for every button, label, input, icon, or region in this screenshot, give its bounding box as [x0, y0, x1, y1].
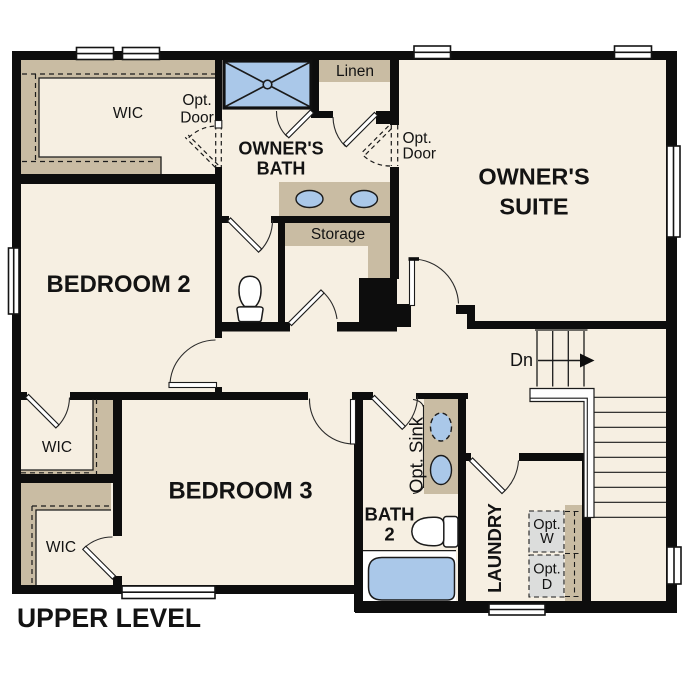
svg-text:Door: Door	[403, 145, 437, 162]
svg-text:Door: Door	[180, 109, 214, 126]
svg-text:OWNER'S: OWNER'S	[238, 138, 323, 158]
svg-text:Dn: Dn	[510, 350, 533, 370]
svg-text:W: W	[540, 531, 554, 547]
svg-text:WIC: WIC	[42, 439, 72, 456]
svg-text:SUITE: SUITE	[499, 194, 568, 220]
svg-text:LAUNDRY: LAUNDRY	[484, 502, 505, 592]
svg-text:OWNER'S: OWNER'S	[478, 164, 589, 190]
svg-text:Storage: Storage	[311, 226, 365, 243]
svg-text:D: D	[542, 577, 552, 593]
svg-text:2: 2	[384, 524, 394, 545]
svg-text:Linen: Linen	[336, 63, 374, 80]
svg-text:BEDROOM 2: BEDROOM 2	[47, 271, 191, 298]
svg-text:UPPER LEVEL: UPPER LEVEL	[17, 603, 201, 633]
svg-text:BATH: BATH	[257, 158, 306, 178]
svg-text:BEDROOM 3: BEDROOM 3	[168, 478, 312, 505]
svg-text:Opt. Sink: Opt. Sink	[406, 416, 427, 493]
svg-text:WIC: WIC	[46, 539, 76, 556]
svg-text:Opt.: Opt.	[533, 562, 560, 578]
svg-text:Opt.: Opt.	[182, 92, 211, 109]
svg-text:BATH: BATH	[364, 504, 414, 525]
svg-text:WIC: WIC	[113, 105, 143, 122]
